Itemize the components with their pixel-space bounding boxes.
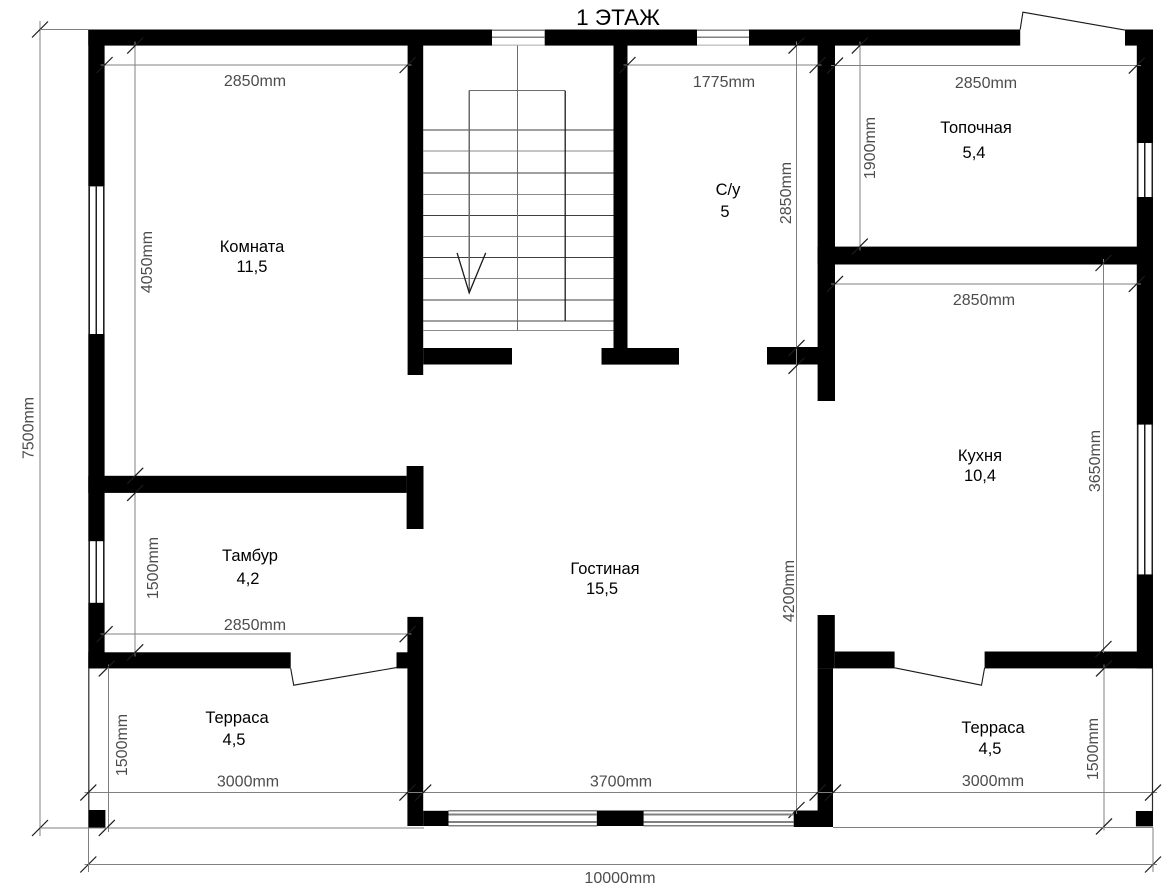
svg-text:1500mm: 1500mm: [145, 537, 162, 599]
svg-text:2850mm: 2850mm: [224, 73, 286, 90]
svg-text:4050mm: 4050mm: [139, 231, 156, 293]
svg-text:1500mm: 1500mm: [114, 714, 131, 776]
svg-text:Гостиная: Гостиная: [570, 560, 639, 578]
svg-text:Топочная: Топочная: [940, 119, 1012, 137]
svg-text:2850mm: 2850mm: [955, 75, 1017, 92]
svg-text:Тамбур: Тамбур: [222, 547, 278, 565]
svg-text:2850mm: 2850mm: [953, 292, 1015, 309]
svg-text:15,5: 15,5: [586, 580, 618, 598]
svg-text:3000mm: 3000mm: [217, 774, 279, 791]
svg-text:4,2: 4,2: [237, 570, 260, 588]
svg-text:10000mm: 10000mm: [584, 870, 655, 887]
svg-text:Терраса: Терраса: [961, 719, 1025, 737]
svg-text:С/у: С/у: [716, 181, 742, 199]
svg-text:2850mm: 2850mm: [778, 162, 795, 224]
svg-text:Терраса: Терраса: [205, 709, 269, 727]
svg-text:Комната: Комната: [220, 238, 285, 256]
svg-text:7500mm: 7500mm: [21, 397, 38, 459]
svg-text:4200mm: 4200mm: [781, 560, 798, 622]
svg-text:1775mm: 1775mm: [693, 74, 755, 91]
svg-text:5: 5: [720, 203, 729, 221]
svg-text:3650mm: 3650mm: [1087, 430, 1104, 492]
svg-text:1900mm: 1900mm: [862, 117, 879, 179]
svg-text:3000mm: 3000mm: [962, 773, 1024, 790]
svg-text:5,4: 5,4: [963, 144, 986, 162]
svg-text:1500mm: 1500mm: [1085, 718, 1102, 780]
svg-text:10,4: 10,4: [964, 467, 996, 485]
svg-text:11,5: 11,5: [237, 258, 268, 276]
svg-text:Кухня: Кухня: [958, 447, 1002, 465]
svg-text:2850mm: 2850mm: [224, 617, 286, 634]
svg-text:4,5: 4,5: [979, 740, 1002, 758]
svg-text:4,5: 4,5: [223, 731, 246, 749]
svg-text:3700mm: 3700mm: [590, 774, 652, 791]
svg-text:1 ЭТАЖ: 1 ЭТАЖ: [576, 5, 660, 30]
